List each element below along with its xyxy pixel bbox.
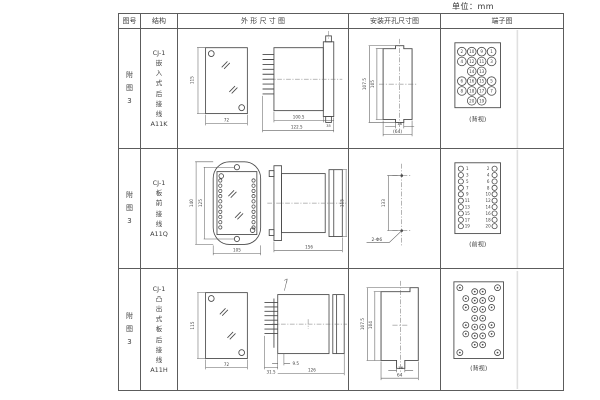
datasheet-page: 单位：mm 图号 结构 外 形 尺 寸 图 安装开孔尺寸图 端子图 附 图 3 … bbox=[0, 0, 600, 400]
terminal-diagram-a11h: (背视) bbox=[442, 271, 563, 389]
dim-side-height: 115 bbox=[339, 198, 344, 206]
svg-text:2: 2 bbox=[460, 49, 463, 54]
dim-cutout-outer-height: 107.5 bbox=[359, 317, 365, 329]
svg-text:13: 13 bbox=[464, 204, 470, 209]
dim-slot-width: 16 bbox=[398, 365, 404, 370]
dim-hole-span: 133 bbox=[381, 198, 387, 206]
svg-text:10: 10 bbox=[469, 49, 475, 54]
dim-total-length: 122.5 bbox=[290, 124, 302, 129]
dim-face-gap: 9.5 bbox=[292, 361, 299, 366]
dim-cutout-outer-height: 107.5 bbox=[361, 77, 367, 89]
svg-text:5: 5 bbox=[465, 178, 468, 183]
svg-text:11: 11 bbox=[479, 58, 485, 63]
svg-text:16: 16 bbox=[469, 78, 475, 83]
outline-drawing-a11h: 115 72 31.5 9.5 126 bbox=[179, 271, 348, 389]
structure-cell-row1: CJ-1 嵌 入 式 后 接 线 A11K bbox=[141, 29, 178, 149]
dim-front-height: 115 bbox=[190, 321, 195, 329]
svg-text:1: 1 bbox=[465, 166, 468, 171]
dim-side-length: 156 bbox=[305, 244, 313, 249]
dim-inner-height: 125 bbox=[197, 198, 202, 206]
dim-pin-length: 31.5 bbox=[266, 369, 275, 374]
col-header-fig-no: 图号 bbox=[119, 14, 141, 29]
mounting-drawing-a11k: 107.5 105 16 (64) bbox=[350, 30, 440, 148]
terminal-diagram-a11k: 2109141211314136161558181772019 (背视) bbox=[442, 30, 563, 148]
terminal-circles: 2109141211314136161558181772019 bbox=[457, 47, 495, 105]
mounting-cell-row1: 107.5 105 16 (64) bbox=[349, 29, 441, 149]
dim-cutout-width: 64 bbox=[396, 372, 402, 378]
svg-text:18: 18 bbox=[469, 88, 475, 93]
svg-text:6: 6 bbox=[486, 178, 489, 183]
svg-text:6: 6 bbox=[460, 78, 463, 83]
outline-cell-row3: 115 72 31.5 9.5 126 bbox=[178, 269, 349, 390]
svg-text:15: 15 bbox=[464, 210, 470, 215]
dim-cutout-width: (64) bbox=[393, 128, 402, 134]
dim-front-width: 105 bbox=[233, 247, 241, 252]
dim-cutout-inner-height: 105 bbox=[369, 79, 375, 87]
mounting-drawing-a11q: 133 2-Φ6 bbox=[350, 150, 440, 268]
col-header-structure: 结构 bbox=[141, 14, 178, 29]
dim-body-length: 100.5 bbox=[292, 114, 304, 119]
outline-cell-row1: 115 72 100.5 122.5 35 bbox=[178, 29, 349, 149]
terminal-cell-row3: (背视) bbox=[441, 269, 563, 390]
col-header-mounting: 安装开孔尺寸图 bbox=[349, 14, 441, 29]
dim-front-width: 72 bbox=[223, 117, 229, 122]
svg-text:14: 14 bbox=[485, 204, 491, 209]
svg-text:2: 2 bbox=[486, 166, 489, 171]
outline-cell-row2: 140 125 105 156 115 bbox=[178, 149, 349, 269]
dim-front-height: 115 bbox=[189, 75, 194, 83]
svg-text:15: 15 bbox=[479, 78, 485, 83]
dim-flange-width: 35 bbox=[326, 124, 331, 128]
svg-text:17: 17 bbox=[464, 217, 470, 222]
svg-text:7: 7 bbox=[465, 185, 468, 190]
svg-text:11: 11 bbox=[464, 198, 470, 203]
svg-text:8: 8 bbox=[486, 185, 489, 190]
svg-text:9: 9 bbox=[465, 191, 468, 196]
svg-text:8: 8 bbox=[460, 88, 463, 93]
svg-text:1: 1 bbox=[490, 49, 493, 54]
svg-text:9: 9 bbox=[480, 49, 483, 54]
col-header-outline: 外 形 尺 寸 图 bbox=[178, 14, 349, 29]
terminal-cell-row2: 1357911131517192468101214161820 (前视) bbox=[441, 149, 563, 269]
mounting-cell-row2: 133 2-Φ6 bbox=[349, 149, 441, 269]
view-caption: (背视) bbox=[469, 115, 486, 123]
svg-text:14: 14 bbox=[469, 68, 475, 73]
fig-no-cell-row2: 附 图 3 bbox=[119, 149, 141, 269]
svg-text:20: 20 bbox=[469, 98, 475, 103]
outline-drawing-a11k: 115 72 100.5 122.5 35 bbox=[179, 30, 348, 148]
dimension-table: 图号 结构 外 形 尺 寸 图 安装开孔尺寸图 端子图 附 图 3 CJ-1 嵌… bbox=[118, 13, 564, 391]
dim-front-width: 72 bbox=[223, 361, 229, 366]
svg-text:12: 12 bbox=[469, 58, 475, 63]
svg-text:3: 3 bbox=[465, 172, 468, 177]
svg-text:17: 17 bbox=[479, 88, 485, 93]
svg-text:19: 19 bbox=[464, 223, 470, 228]
svg-text:4: 4 bbox=[460, 58, 463, 63]
svg-text:20: 20 bbox=[485, 223, 491, 228]
dim-total-length: 126 bbox=[308, 367, 316, 372]
svg-text:3: 3 bbox=[490, 58, 493, 63]
fig-no-cell-row3: 附 图 3 bbox=[119, 269, 141, 390]
terminal-diagram-a11q: 1357911131517192468101214161820 (前视) bbox=[442, 150, 563, 268]
svg-text:4: 4 bbox=[486, 172, 489, 177]
unit-label: 单位：mm bbox=[413, 1, 533, 12]
terminal-cell-row1: 2109141211314136161558181772019 (背视) bbox=[441, 29, 563, 149]
view-caption: (背视) bbox=[470, 364, 487, 372]
svg-text:18: 18 bbox=[485, 217, 491, 222]
svg-text:12: 12 bbox=[485, 198, 491, 203]
mounting-cell-row3: 107.5 104 16 64 bbox=[349, 269, 441, 390]
front-terminal-pins bbox=[218, 178, 254, 228]
svg-text:7: 7 bbox=[490, 88, 493, 93]
col-header-terminal: 端子图 bbox=[441, 14, 563, 29]
svg-text:13: 13 bbox=[479, 68, 485, 73]
dim-outer-height: 140 bbox=[188, 198, 193, 206]
svg-text:19: 19 bbox=[479, 98, 485, 103]
svg-text:16: 16 bbox=[485, 210, 491, 215]
structure-cell-row3: CJ-1 凸 出 式 板 后 接 线 A11H bbox=[141, 269, 178, 390]
terminal-circles bbox=[456, 284, 500, 355]
terminal-numbers: 1357911131517192468101214161820 bbox=[464, 166, 490, 229]
outline-drawing-a11q: 140 125 105 156 115 bbox=[179, 150, 348, 268]
dim-cutout-inner-height: 104 bbox=[368, 320, 374, 328]
dim-notch-width: 16 bbox=[397, 121, 403, 126]
hole-spec-label: 2-Φ6 bbox=[371, 237, 382, 243]
svg-text:10: 10 bbox=[485, 191, 491, 196]
svg-text:5: 5 bbox=[490, 78, 493, 83]
structure-cell-row2: CJ-1 板 前 接 线 A11Q bbox=[141, 149, 178, 269]
fig-no-cell-row1: 附 图 3 bbox=[119, 29, 141, 149]
view-caption: (前视) bbox=[469, 240, 486, 248]
mounting-drawing-a11h: 107.5 104 16 64 bbox=[350, 271, 440, 389]
